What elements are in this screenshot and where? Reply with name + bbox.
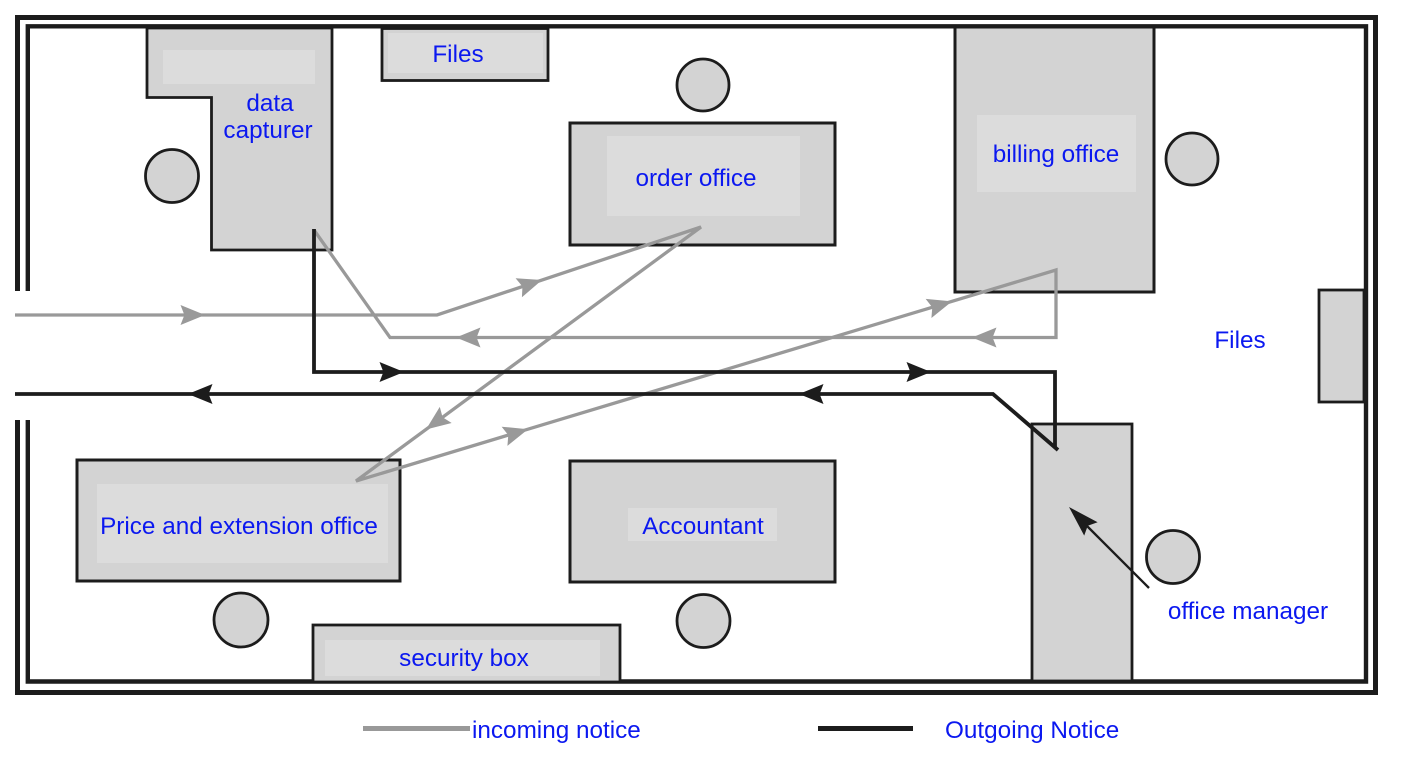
svg-text:billing office: billing office	[993, 141, 1120, 168]
svg-text:security box: security box	[399, 645, 529, 672]
svg-text:Price and extension office: Price and extension office	[100, 513, 378, 540]
svg-text:office manager: office manager	[1168, 598, 1328, 625]
svg-text:Accountant: Accountant	[642, 513, 764, 540]
svg-text:capturer: capturer	[223, 117, 312, 144]
svg-text:Files: Files	[1214, 327, 1265, 354]
svg-text:Outgoing Notice: Outgoing Notice	[945, 717, 1119, 744]
svg-text:Files: Files	[432, 41, 483, 68]
svg-text:order office: order office	[635, 165, 756, 192]
svg-text:data: data	[246, 90, 294, 117]
svg-text:incoming notice: incoming notice	[472, 717, 641, 744]
